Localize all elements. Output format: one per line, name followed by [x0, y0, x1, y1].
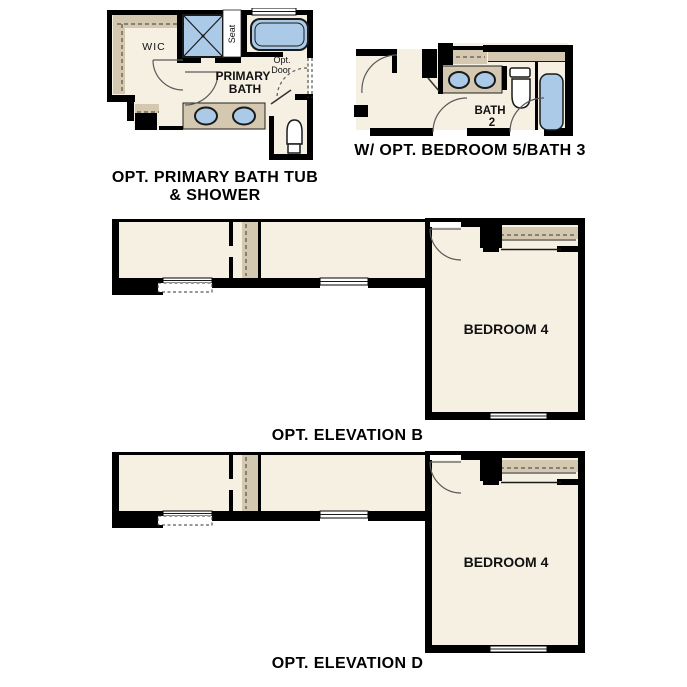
floor-plan-sheet: WIC Seat PRIMARY BATH Opt. Door OPT. PRI… [0, 0, 687, 687]
primary-bath-label-line2: BATH [229, 82, 261, 96]
opt-door-label-line2: Door [271, 65, 291, 75]
closet-shelf [498, 227, 578, 240]
primary-bath-label-line1: PRIMARY [216, 69, 271, 83]
chase-strip [242, 455, 258, 511]
bedroom4-label: BEDROOM 4 [464, 321, 549, 337]
bathtub [540, 74, 563, 130]
closet-shelf [498, 460, 578, 473]
primary-bath-caption-line2: & SHOWER [85, 187, 345, 205]
bedroom5-bath3-caption: W/ OPT. BEDROOM 5/BATH 3 [340, 142, 600, 160]
window [158, 511, 212, 525]
elevation-d-caption: OPT. ELEVATION D [105, 655, 590, 673]
window [490, 646, 547, 652]
bath2-label-line1: BATH [474, 105, 505, 117]
primary-bath-plan: WIC Seat PRIMARY BATH Opt. Door [105, 8, 320, 165]
chase-strip [242, 222, 258, 278]
seat-label: Seat [227, 24, 237, 43]
window [320, 511, 368, 518]
window [320, 278, 368, 285]
elevation-b-caption: OPT. ELEVATION B [105, 427, 590, 445]
primary-bath-caption-line1: OPT. PRIMARY BATH TUB [85, 169, 345, 187]
bedroom5-bath3-plan: BATH 2 [354, 38, 576, 142]
window [158, 278, 212, 292]
wic-label: WIC [142, 41, 165, 53]
primary-bath-caption: OPT. PRIMARY BATH TUB & SHOWER [85, 169, 345, 205]
elevation-d-plan: BEDROOM 4 [105, 446, 590, 662]
window [252, 8, 296, 15]
shower [183, 15, 223, 57]
window [490, 413, 547, 419]
elevation-b-plan: BEDROOM 4 [105, 213, 590, 429]
toilet [287, 120, 302, 153]
bathtub [251, 19, 308, 50]
opt-door-label-line1: Opt. [273, 55, 290, 65]
bedroom4-label: BEDROOM 4 [464, 554, 549, 570]
bath2-label-line2: 2 [489, 117, 495, 129]
